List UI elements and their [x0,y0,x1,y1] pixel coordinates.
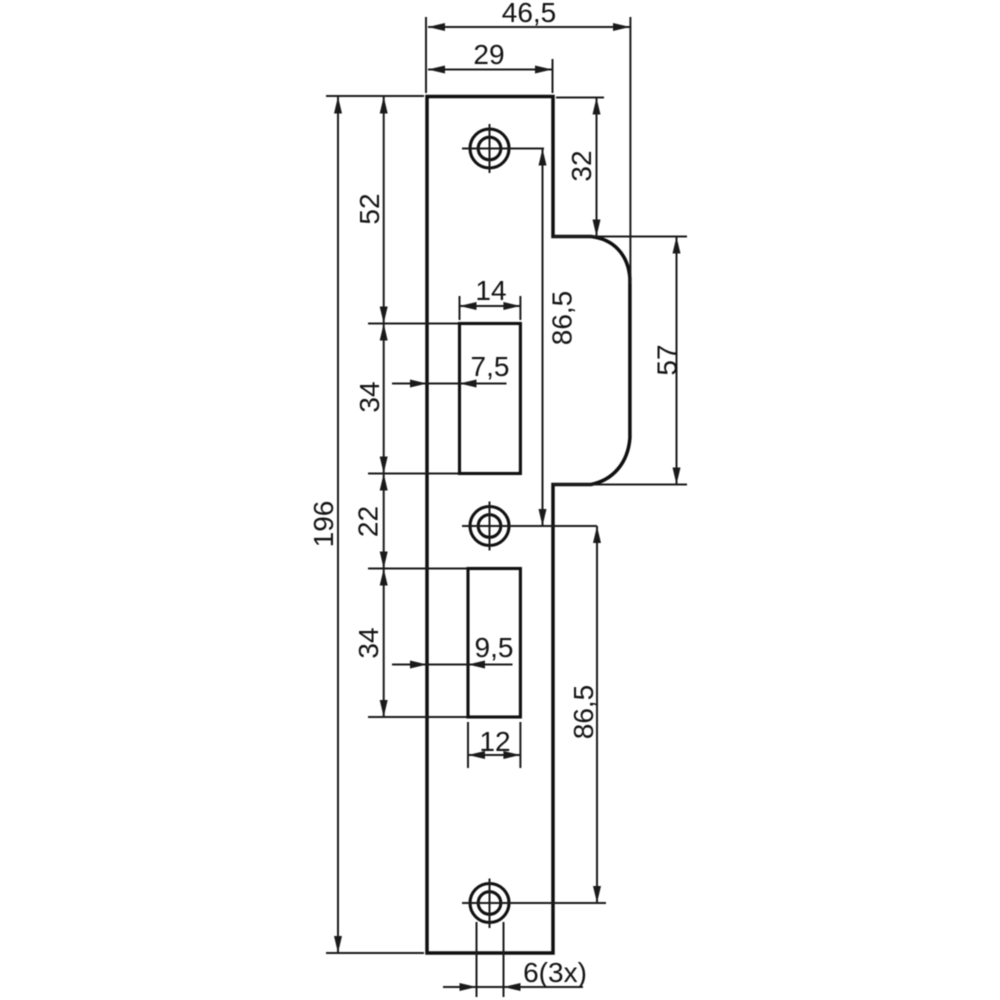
svg-text:22: 22 [353,506,384,537]
svg-text:196: 196 [308,501,339,548]
svg-text:32: 32 [566,150,597,181]
svg-text:6(3x): 6(3x) [523,957,587,988]
svg-text:46,5: 46,5 [502,0,557,28]
svg-text:9,5: 9,5 [475,632,514,663]
svg-text:86,5: 86,5 [568,685,599,740]
svg-text:7,5: 7,5 [471,351,510,382]
svg-text:86,5: 86,5 [547,291,578,346]
svg-text:29: 29 [473,39,504,70]
svg-text:12: 12 [479,726,510,757]
svg-text:14: 14 [475,275,506,306]
svg-text:52: 52 [354,193,385,224]
svg-text:57: 57 [652,344,683,375]
svg-text:34: 34 [353,627,384,658]
svg-text:34: 34 [354,381,385,412]
